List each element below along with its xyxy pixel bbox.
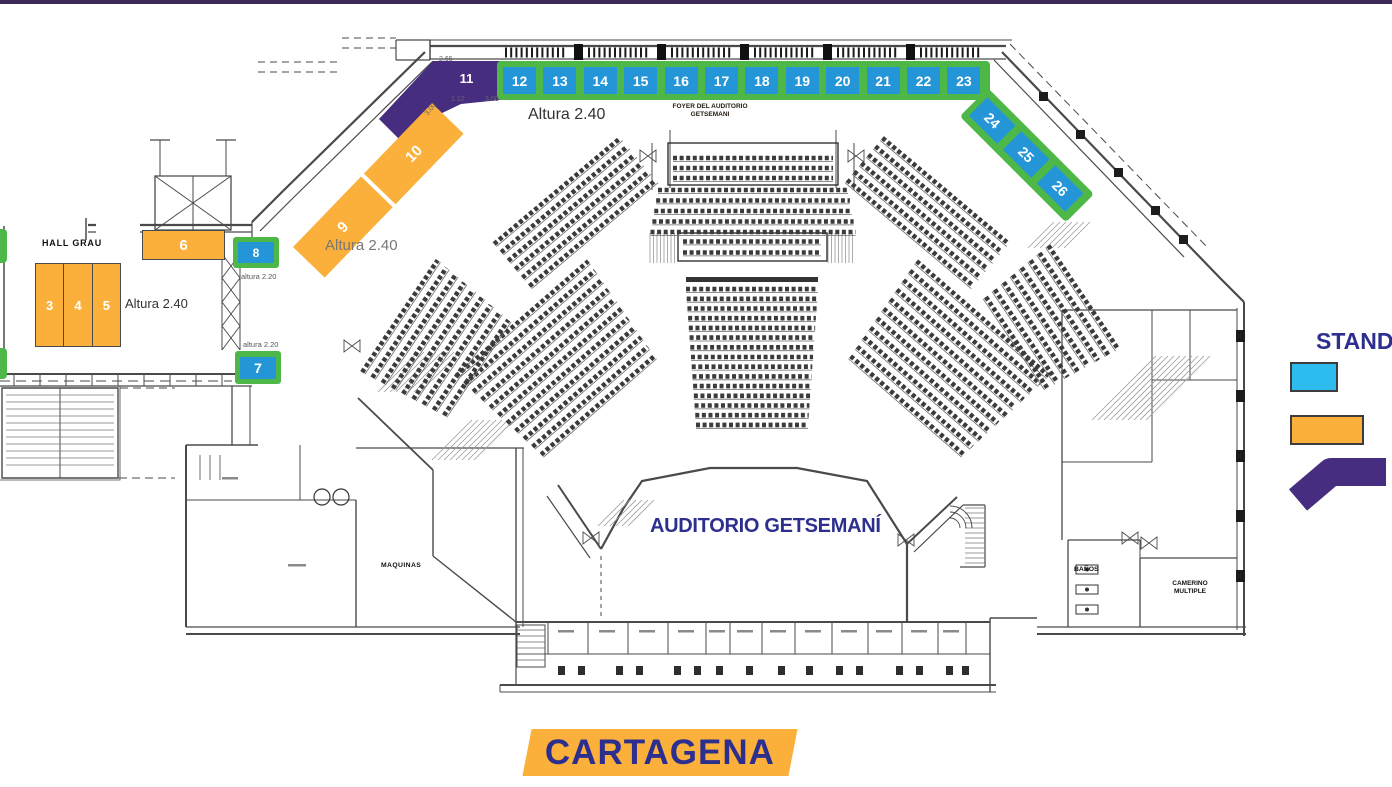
stand-5[interactable]: 5 — [92, 264, 120, 346]
stand-8[interactable]: 8 — [238, 242, 274, 263]
label-foyer: FOYER DEL AUDITORIO GETSEMANI — [662, 103, 758, 119]
label-foyer-line1: FOYER DEL AUDITORIO — [673, 103, 748, 110]
dim-300-a: 3.00 — [485, 96, 499, 103]
stand-15[interactable]: 15 — [624, 67, 657, 94]
stand-17[interactable]: 17 — [705, 67, 738, 94]
label-auditorium: AUDITORIO GETSEMANÍ — [650, 515, 862, 538]
legend-swatch-orange — [1290, 415, 1364, 445]
label-altura-220-top: altura 2.20 — [241, 272, 276, 281]
label-banos: BAÑOS — [1074, 566, 1099, 573]
label-altura-240-ramp: Altura 2.40 — [325, 237, 398, 254]
stand-12[interactable]: 12 — [503, 67, 536, 94]
stand-13[interactable]: 13 — [543, 67, 576, 94]
label-camerino-line2: MULTIPLE — [1174, 588, 1206, 595]
label-altura-240-hall: Altura 2.40 — [125, 296, 188, 311]
stand-20[interactable]: 20 — [826, 67, 859, 94]
stand-11[interactable]: 11 — [433, 61, 500, 95]
stand-7[interactable]: 7 — [240, 357, 276, 379]
seating-rows — [362, 138, 1118, 465]
legend-swatch-purple — [1278, 448, 1392, 516]
legend-swatch-blue — [1290, 362, 1338, 392]
stand-23[interactable]: 23 — [947, 67, 980, 94]
label-altura-220-bottom: altura 2.20 — [243, 340, 278, 349]
label-foyer-line2: GETSEMANI — [691, 111, 730, 118]
label-camerino-line1: CAMERINO — [1172, 580, 1207, 587]
stand-16[interactable]: 16 — [665, 67, 698, 94]
stand-14[interactable]: 14 — [584, 67, 617, 94]
dim-265: 2.65 — [439, 56, 453, 63]
stand-4[interactable]: 4 — [63, 264, 91, 346]
stand-3[interactable]: 3 — [36, 264, 63, 346]
stand-frame-7: 7 — [235, 351, 281, 384]
stand-strip-top: 121314151617181920212223 — [497, 61, 990, 100]
label-hall-grau: HALL GRAU — [42, 238, 102, 248]
label-camerino: CAMERINO MULTIPLE — [1164, 580, 1216, 597]
stand-cut-left-upper[interactable] — [0, 229, 7, 263]
city-banner-label: CARTAGENA — [545, 733, 775, 773]
legend-title: STAND — [1316, 328, 1392, 355]
floorplan-page: 1213141516171819202122232425269101134568… — [0, 0, 1392, 787]
stand-18[interactable]: 18 — [745, 67, 778, 94]
stand-22[interactable]: 22 — [907, 67, 940, 94]
stand-19[interactable]: 19 — [786, 67, 819, 94]
label-altura-240-foyer: Altura 2.40 — [528, 106, 605, 124]
stand-cut-left-lower[interactable] — [0, 348, 7, 379]
label-maquinas: MAQUINAS — [381, 562, 421, 569]
dim-112: 1.12 — [451, 96, 465, 103]
stand-21[interactable]: 21 — [867, 67, 900, 94]
city-banner: CARTAGENA — [522, 729, 797, 776]
stand-frame-8: 8 — [233, 237, 279, 268]
stand-block-hall: 345 — [35, 263, 121, 347]
stand-6[interactable]: 6 — [142, 230, 225, 260]
